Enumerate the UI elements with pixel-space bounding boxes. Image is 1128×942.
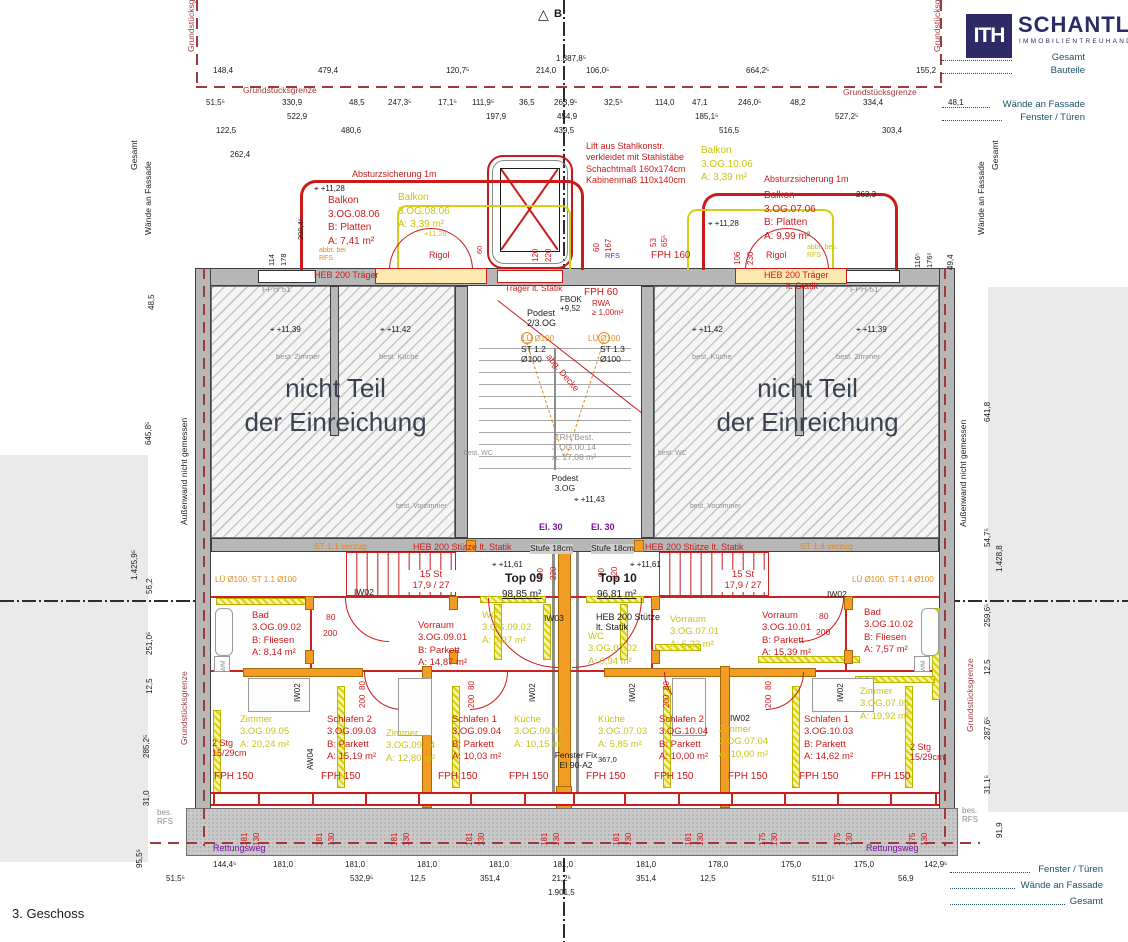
bathtub	[921, 608, 939, 656]
el30-left: El. 30	[539, 522, 563, 532]
facade-tick	[624, 792, 626, 806]
dim: 532,9⁵	[350, 874, 373, 883]
dim: 120	[531, 249, 540, 262]
vorraum-09: Vorraum 3.OG.09.01 B: Parkett A: 14,87 m…	[418, 620, 467, 669]
dim: 56,2	[145, 578, 154, 594]
dim: 200	[816, 628, 830, 638]
dim: 12,5	[410, 874, 426, 883]
dim: 91,9	[995, 822, 1004, 838]
best-kueche-right: best. Küche	[692, 353, 732, 362]
grenze-corner-left: Grundstücksgrenze	[187, 0, 197, 52]
iw02: IW02	[528, 683, 537, 702]
lue-st11: LÜ Ø100, ST 1.1 Ø100	[215, 575, 297, 584]
iw03: IW03	[544, 614, 564, 624]
wc-09: WC 3.OG.09.02 A: 0,97 m²	[482, 610, 531, 647]
fbok: FBOK +9,52	[560, 295, 582, 313]
iw02: IW02	[836, 683, 845, 702]
window-top-right	[842, 270, 900, 283]
dim: 181	[465, 833, 474, 846]
zimmer-0704: Zimmer 3.OG.07.04 A: 10,00 m²	[719, 724, 768, 761]
dim: 130	[552, 833, 561, 846]
fph-150: FPH 150	[654, 771, 693, 783]
fph-150: FPH 150	[438, 771, 477, 783]
st14-verzug: ST 1.4 verzug	[800, 542, 853, 552]
door-post	[305, 596, 314, 610]
dim: 220	[544, 249, 553, 262]
aw04: AW04	[306, 749, 315, 771]
wm-right: WM	[920, 660, 927, 672]
logo-name: SCHANTL	[1018, 12, 1128, 38]
dim: 155,2	[916, 66, 936, 75]
absturzsicherung-left: Absturzsicherung 1m	[352, 169, 437, 179]
top09-area: 98,85 m²	[502, 589, 541, 601]
dim: 80	[662, 681, 671, 690]
section-marker-triangle: △	[538, 6, 549, 22]
dim: 175	[908, 833, 917, 846]
lift-text: Lift aus Stahlkonstr. verkleidet mit Sta…	[586, 141, 686, 186]
door-post	[651, 650, 660, 664]
schlafen2-10: Schlafen 2 3.OG.10.04 B: Parkett A: 10,0…	[659, 714, 708, 763]
facade-tick	[890, 792, 892, 806]
lue-st14: LÜ Ø100, ST 1.4 Ø100	[852, 575, 934, 584]
vorraum-07: Vorraum 3.OG.07.01 A: 6,23 m²	[670, 614, 719, 651]
lower-building-strip	[186, 808, 958, 856]
absturzsicherung-right: Absturzsicherung 1m	[764, 174, 849, 184]
fph-150: FPH 150	[799, 771, 838, 783]
dim: 178,0	[708, 860, 728, 869]
dim: 181,0	[553, 860, 573, 869]
schlafen1-09: Schlafen 1 3.OG.09.04 B: Parkett A: 10,0…	[452, 714, 501, 763]
dim: 167	[604, 239, 613, 252]
hoehe-podest: ⌖ +11,43	[574, 495, 605, 504]
dim: 285,2⁵	[142, 735, 151, 758]
rigol-left: Rigol	[429, 250, 450, 260]
fph-150: FPH 150	[321, 771, 360, 783]
dim: 54,7⁵	[983, 528, 992, 547]
dim: 176⁵	[926, 252, 935, 268]
dim: 262,4	[230, 150, 250, 159]
nicht-teil-right: nicht Teil der Einreichung	[700, 372, 915, 440]
dim: 181	[612, 833, 621, 846]
property-line-left	[203, 268, 205, 846]
dim: 263,9⁵	[554, 98, 577, 107]
best-zimmer-right: best. Zimmer	[836, 353, 880, 362]
dim: 148,4	[213, 66, 233, 75]
stufe-left: Stufe 18cm	[530, 544, 573, 554]
balkon-right-neu: Balkon 3.OG.07.06 B: Platten A: 9,99 m²	[764, 189, 816, 243]
facade-tick	[418, 792, 420, 806]
dim: Gesamt	[991, 140, 1001, 170]
dim: 130	[624, 833, 633, 846]
section-marker-label: B	[554, 8, 562, 21]
legend-gesamt-top: Gesamt	[985, 52, 1085, 63]
background-panel-right	[988, 287, 1128, 812]
outer-wall-right	[939, 268, 955, 811]
dim: 303,4	[882, 126, 902, 135]
dim: 200	[323, 629, 337, 639]
fph-150: FPH 150	[871, 771, 910, 783]
dim: 48,5	[147, 294, 156, 310]
best-kueche-left: best. Küche	[379, 353, 419, 362]
facade-tick	[837, 792, 839, 806]
page-title: 3. Geschoss	[12, 906, 84, 921]
dim: 144,4⁵	[213, 860, 236, 869]
facade-wall-bottom	[211, 792, 939, 806]
window-top-left	[258, 270, 316, 283]
dim: 130	[327, 833, 336, 846]
legend-gesamt-bottom: Gesamt	[983, 896, 1103, 907]
dim: 32,5⁵	[604, 98, 623, 107]
bes-rfs-left: bes. RFS	[157, 808, 173, 826]
dim: 31,0	[142, 790, 151, 806]
dim: 247,3⁵	[388, 98, 411, 107]
hoehe-kueche-left: ⌖ +11,42	[380, 325, 411, 334]
hoehe-kueche-right: ⌖ +11,42	[692, 325, 723, 334]
bes-rfs-right: bes. RFS	[962, 806, 978, 824]
dim: 49,4	[946, 254, 955, 270]
best-wc-right: best. WC	[658, 450, 687, 458]
fph-150: FPH 150	[509, 771, 548, 783]
aussenwand-right: Außenwand nicht gemessen	[959, 420, 969, 527]
legend-waende-bottom: Wände an Fassade	[983, 880, 1103, 891]
dim: 181,0	[489, 860, 509, 869]
grenze-corner-right: Grundstücksgrenze	[933, 0, 943, 52]
dim: 31,1⁵	[983, 775, 992, 794]
facade-tick	[470, 792, 472, 806]
legend-waende: Wände an Fassade	[985, 99, 1085, 110]
fph-51-left: FPH 51	[262, 285, 291, 295]
balkon-left-neu: Balkon 3.OG.08.06 B: Platten A: 7,41 m²	[328, 194, 380, 248]
property-line-bottom	[150, 842, 980, 844]
dim: 47,1	[692, 98, 708, 107]
background-panel-left	[0, 455, 148, 862]
dim: 1.428,8	[995, 545, 1004, 572]
kueche-09: Küche 3.OG.09.03 A: 10,15 m²	[514, 714, 563, 751]
abbr-right: abbr. bes. RFS	[807, 244, 838, 260]
dim: 60	[592, 243, 601, 252]
zimmer-0904: Zimmer 3.OG.09.04 A: 12,80 m²	[386, 728, 435, 765]
dim: 175,0	[854, 860, 874, 869]
dim: 181,0	[273, 860, 293, 869]
lift-door	[497, 270, 563, 283]
traeger-statik: Träger lt. Statik	[505, 284, 562, 294]
dim: 263,3	[856, 190, 876, 199]
top10-label: Top 10	[599, 572, 637, 586]
dim: 80	[326, 613, 335, 623]
dim: 439,5	[554, 126, 574, 135]
dim: 175	[833, 833, 842, 846]
dim: 114,0	[655, 98, 674, 107]
facade-tick	[524, 792, 526, 806]
dim: 48,2	[790, 98, 806, 107]
iw02: IW02	[354, 588, 374, 598]
heb-stuetze-right: HEB 200 Stütze lt. Statik	[645, 542, 744, 552]
dim: Gesamt	[130, 140, 140, 170]
dim: 367,0	[598, 756, 617, 765]
core-wall-right	[641, 286, 654, 538]
hoehe-balkon-left: ⌖ +11,28	[314, 184, 345, 193]
lueftung-left: LÜ Ø100	[522, 334, 554, 343]
fph-60: FPH 60	[584, 287, 618, 299]
dim: 511,0⁵	[812, 874, 835, 883]
facade-tick	[573, 792, 575, 806]
legend-fenster-bottom: Fenster / Türen	[983, 864, 1103, 875]
dim: 516,5	[719, 126, 739, 135]
dim: 197,9	[486, 112, 506, 121]
dim: 80	[764, 681, 773, 690]
nicht-teil-left: nicht Teil der Einreichung	[228, 372, 443, 440]
dim: 95,5⁵	[135, 849, 144, 868]
rfs-marker: RFS	[605, 252, 620, 261]
top10-area: 96,81 m²	[597, 589, 636, 601]
best-vorzimmer-left: best. Vorzimmer	[396, 503, 447, 511]
fenster-fix: Fenster Fix EI 90-A2	[550, 751, 602, 771]
dim: 130	[696, 833, 705, 846]
dim: 106	[733, 252, 742, 265]
dim: Wände an Fassade	[144, 161, 154, 235]
heb-stuetze-left: HEB 200 Stütze lt. Statik	[413, 542, 512, 552]
hoehe-top10: ⌖ +11,61	[630, 560, 661, 569]
st-12: ST 1.2 Ø100	[521, 345, 546, 365]
dim: 56,9	[898, 874, 914, 883]
zimmer-0705: Zimmer 3.OG.07.05 A: 19,92 m²	[860, 686, 909, 723]
dim: 185,1⁵	[695, 112, 718, 121]
door-post	[844, 650, 853, 664]
fph-160: FPH 160	[651, 250, 690, 262]
lueftung-right: LÜ Ø100	[588, 334, 620, 343]
dim: 181	[684, 833, 693, 846]
dim: 200	[467, 695, 476, 708]
dim: 65⁵	[660, 235, 669, 247]
dim: 454,9	[557, 112, 577, 121]
dim: 220	[549, 567, 558, 580]
dim: 130	[770, 833, 779, 846]
dim: 48,1	[948, 98, 964, 107]
dim: 130	[252, 833, 261, 846]
dim: 51,5⁵	[206, 98, 225, 107]
dim: 36,5	[519, 98, 535, 107]
dim: 351,4	[480, 874, 500, 883]
facade-tick	[365, 792, 367, 806]
dim: 48,5	[349, 98, 365, 107]
dim: 334,4	[863, 98, 883, 107]
dim: 522,9	[287, 112, 307, 121]
dim: Wände an Fassade	[977, 161, 987, 235]
facade-tick	[678, 792, 680, 806]
podest-3: Podest 3.OG	[544, 474, 586, 494]
core-wall-left	[455, 286, 468, 538]
rwa: RWA ≥ 1,00m²	[592, 299, 624, 317]
iw02: IW02	[730, 714, 750, 724]
stufe-right: Stufe 18cm	[591, 544, 634, 554]
dim: 200,4⁵	[297, 218, 306, 240]
facade-tick	[935, 792, 937, 806]
legend-bauteile: Bauteile	[985, 65, 1085, 76]
dim-bottom-total: 1.901,5	[548, 888, 575, 897]
balkon-left-best: Balkon 3.OG.08.06 A: 3,39 m²	[398, 191, 450, 232]
dim: 122,5	[216, 126, 236, 135]
treppe-left: 15 St 17,9 / 27	[406, 570, 456, 592]
dim: 120,7⁵	[446, 66, 469, 75]
heb-stuetze-mitte: HEB 200 Stütze lt. Statik	[596, 612, 660, 633]
dim: 645,8⁵	[144, 422, 153, 445]
grenze-left: Grundstücksgrenze	[180, 671, 190, 745]
hoehe-top09: ⌖ +11,61	[492, 560, 523, 569]
balkon-right-best: Balkon 3.OG.10.06 A: 3,39 m²	[701, 144, 753, 185]
dim: 17,1⁵	[438, 98, 457, 107]
heb-traeger-right: HEB 200 Träger	[764, 270, 829, 280]
legend-fenster: Fenster / Türen	[985, 112, 1085, 123]
dim: 12,5	[145, 678, 154, 694]
dim: 80	[467, 681, 476, 690]
bathtub	[215, 608, 233, 656]
fph-150: FPH 150	[728, 771, 767, 783]
dim: 12,5	[700, 874, 716, 883]
dim-top-total: 1.887,8⁵	[556, 54, 586, 63]
dim: 200	[764, 695, 773, 708]
dim: 130	[477, 833, 486, 846]
st-13: ST 1.3 Ø100	[600, 345, 625, 365]
dim: 664,2⁵	[746, 66, 769, 75]
dim: 51,5⁵	[166, 874, 185, 883]
dim: 181	[390, 833, 399, 846]
facade-tick	[731, 792, 733, 806]
bad-09: Bad 3.OG.09.02 B: Fliesen A: 8,14 m²	[252, 610, 301, 659]
iw02: IW02	[628, 683, 637, 702]
dim: 116⁵	[914, 253, 923, 268]
grenze-top-left: Grundstücksgrenze	[243, 86, 317, 96]
podest-23: Podest 2/3.OG	[527, 308, 556, 329]
hoehe-zimmer-right: ⌖ +11,39	[856, 325, 887, 334]
dim: 114	[268, 254, 277, 266]
dim: 200	[662, 695, 671, 708]
trh-best: TRH Best. 3.OG.00.14 A: 17,08 m²	[542, 433, 606, 462]
lt-statik-right: lt. Statik	[786, 281, 818, 291]
el30-right: El. 30	[591, 522, 615, 532]
dim: 80	[358, 681, 367, 690]
iw02: IW02	[827, 590, 847, 600]
dim: 287,6⁵	[983, 717, 992, 740]
dim: 142,9⁵	[924, 860, 947, 869]
dim: 351,4	[636, 874, 656, 883]
bad-10: Bad 3.OG.10.02 B: Fliesen A: 7,57 m²	[864, 607, 913, 656]
iw02: IW02	[293, 683, 302, 702]
facade-tick	[258, 792, 260, 806]
door-post	[449, 596, 458, 610]
kueche-07: Küche 3.OG.07.03 A: 5,85 m²	[598, 714, 647, 751]
dim: 480,6	[341, 126, 361, 135]
dim: 230	[746, 252, 755, 265]
best-zimmer-left: best. Zimmer	[276, 353, 320, 362]
logo-initials: ITH	[974, 24, 1005, 48]
dim: 641,8	[983, 402, 992, 422]
dim: 527,2⁵	[835, 112, 858, 121]
facade-tick	[312, 792, 314, 806]
dim: 80	[819, 612, 828, 622]
steel-beam-left	[243, 668, 363, 677]
st11-verzug: ST 1.1 verzug	[314, 542, 367, 552]
heb-traeger-left: HEB 200 Träger	[314, 270, 379, 280]
dim: 246,0⁵	[738, 98, 761, 107]
fph-150: FPH 150	[586, 771, 625, 783]
dim: 200	[358, 695, 367, 708]
dim: 181,0	[636, 860, 656, 869]
grenze-top-right: Grundstücksgrenze	[843, 88, 917, 98]
rigol-right: Rigol	[766, 250, 787, 260]
door-post	[305, 650, 314, 664]
dim: 130	[845, 833, 854, 846]
schlafen2-09: Schlafen 2 3.OG.09.03 B: Parkett A: 15,1…	[327, 714, 376, 763]
treppe-right: 15 St 17,9 / 27	[718, 570, 768, 592]
door-post	[651, 596, 660, 610]
fph-51-right: FPH 51	[850, 285, 879, 295]
dim: 259,6⁵	[983, 604, 992, 627]
dim: 60	[476, 246, 485, 254]
stg-left: 2 Stg 15/29cm	[212, 738, 247, 759]
dim: 181	[240, 833, 249, 846]
balcony-door-left	[375, 268, 487, 284]
best-vorzimmer-right: best. Vorzimmer	[690, 503, 741, 511]
dim: 175,0	[781, 860, 801, 869]
wc-07: WC 3.OG.07.02 A: 0,94 m²	[588, 631, 637, 668]
facade-tick	[784, 792, 786, 806]
bestand-wall	[216, 598, 308, 605]
fph-150: FPH 150	[214, 771, 253, 783]
best-wc-left: best. WC	[464, 450, 493, 458]
aussenwand-left: Außenwand nicht gemessen	[180, 418, 190, 525]
dim: 106,0⁵	[586, 66, 609, 75]
hoehe-zimmer-left: ⌖ +11,39	[270, 325, 301, 334]
facade-tick	[213, 792, 215, 806]
top09-label: Top 09	[505, 572, 543, 586]
dim: 251,0⁵	[145, 632, 154, 655]
dim: 12,5	[983, 659, 992, 675]
dim: 181	[315, 833, 324, 846]
hoehe-balkon-right: ⌖ +11,28	[708, 219, 739, 228]
dim: 130	[402, 833, 411, 846]
dim: 181,0	[345, 860, 365, 869]
dim: 181,0	[417, 860, 437, 869]
dim: 130	[920, 833, 929, 846]
dim: 21,2⁵	[552, 874, 571, 883]
dim: 214,0	[536, 66, 556, 75]
floor-plan-canvas: ITH SCHANTL IMMOBILIENTREUHAND Gesamt Ba…	[0, 0, 1128, 942]
grenze-right: Grundstücksgrenze	[966, 658, 976, 732]
dim: 479,4	[318, 66, 338, 75]
vorraum-10: Vorraum 3.OG.10.01 B: Parkett A: 15,39 m…	[762, 610, 811, 659]
schlafen1-10: Schlafen 1 3.OG.10.03 B: Parkett A: 14,6…	[804, 714, 853, 763]
hoehe-balkon-left-2: +11,28	[424, 230, 447, 239]
stg-right: 2 Stg 15/29cm	[910, 742, 945, 763]
abbr-left: abbr. bei RFS	[319, 247, 346, 263]
dim: 53	[649, 238, 658, 247]
dim: 1.425,9⁵	[130, 550, 139, 580]
door-post	[634, 540, 644, 552]
dim: 330,9	[282, 98, 302, 107]
dim: 175	[758, 833, 767, 846]
zimmer-0905: Zimmer 3.OG.09.05 A: 20,24 m²	[240, 714, 289, 751]
dim: 178	[280, 253, 289, 266]
dim: 181	[540, 833, 549, 846]
logo-subtitle: IMMOBILIENTREUHAND	[1019, 38, 1128, 45]
dim: 111,9⁵	[472, 98, 494, 107]
wm-left: WM	[220, 660, 227, 672]
